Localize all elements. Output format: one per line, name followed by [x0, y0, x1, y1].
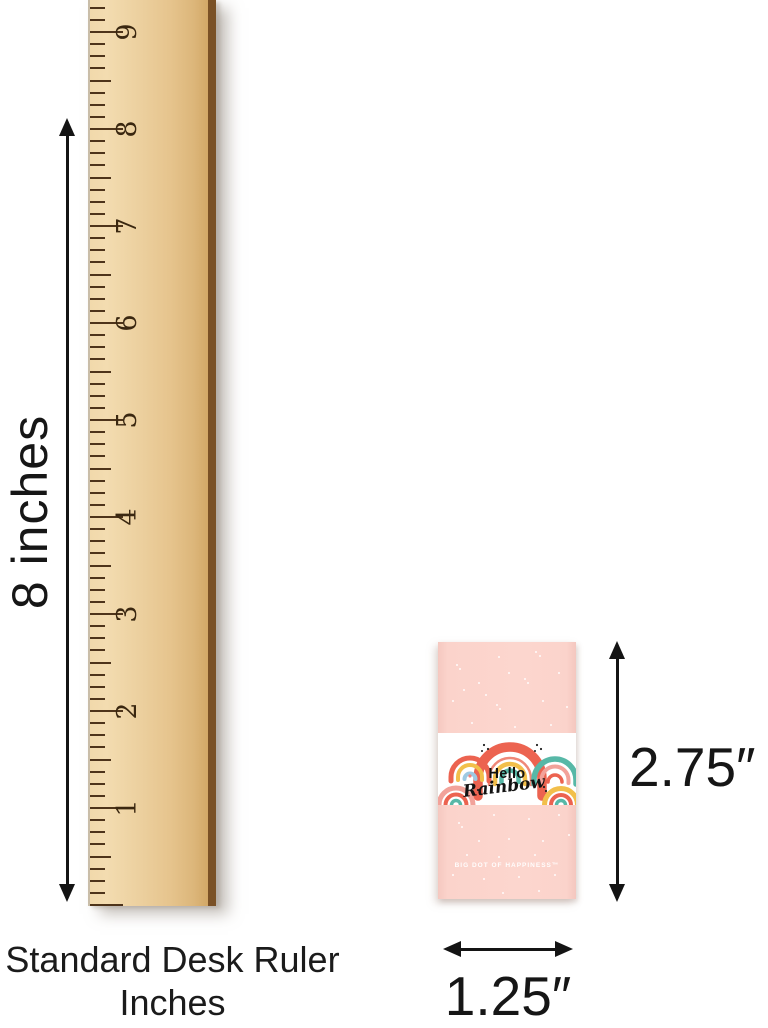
ruler-tick — [90, 577, 105, 579]
ruler-tick — [90, 201, 105, 203]
ruler-tick — [90, 298, 105, 300]
ruler-tick — [90, 371, 111, 373]
speckle-dot — [478, 840, 480, 842]
ruler-tick — [90, 346, 105, 348]
ruler-tick — [90, 67, 105, 69]
speckle-dot — [456, 664, 458, 666]
speckle-dot — [514, 726, 516, 728]
ruler-tick — [90, 395, 105, 397]
ruler-tick — [90, 274, 111, 276]
ruler-tick — [90, 552, 105, 554]
ruler-tick — [90, 189, 105, 191]
ruler-tick — [90, 152, 105, 154]
ruler-tick — [90, 480, 105, 482]
ruler-number: 3 — [112, 598, 144, 630]
ruler-tick — [90, 492, 105, 494]
speckle-dot — [542, 700, 544, 702]
desk-ruler: 987654321 — [88, 0, 216, 906]
speckle-dot — [452, 874, 454, 876]
ruler-tick — [90, 92, 105, 94]
ruler-tick — [90, 249, 105, 251]
ruler-tick — [90, 722, 105, 724]
speckle-dot — [496, 704, 498, 706]
ruler-tick — [90, 261, 105, 263]
speckle-dot — [493, 814, 495, 816]
ruler-tick — [90, 880, 105, 882]
product-height-arrow — [607, 641, 627, 902]
speckle-dot — [459, 668, 461, 670]
ruler-tick — [90, 674, 105, 676]
ruler-tick — [90, 213, 105, 215]
ruler-tick — [90, 819, 105, 821]
arrow-right-icon — [555, 941, 573, 957]
speckle-dot — [538, 890, 540, 892]
speckle-dot — [508, 838, 510, 840]
speckle-dot — [466, 854, 468, 856]
ruler-number: 7 — [112, 210, 144, 242]
ruler-tick — [90, 856, 111, 858]
speckle-dot — [568, 834, 570, 836]
ruler-tick — [90, 904, 123, 906]
ruler-tick — [90, 431, 105, 433]
speckle-dot — [558, 672, 560, 674]
ruler-tick — [90, 625, 105, 627]
ruler-caption-line2: Inches — [0, 981, 345, 1024]
speckle-dot — [485, 694, 487, 696]
ruler-tick — [90, 116, 105, 118]
ruler-caption: Standard Desk Ruler Inches — [0, 938, 345, 1024]
brand-text: BIG DOT OF HAPPINESS™ — [438, 862, 576, 869]
wrapper-label-band: Hello Rainbow — [438, 733, 576, 805]
speckle-dot — [554, 874, 556, 876]
arrow-down-icon — [59, 884, 75, 902]
ruler-tick — [90, 528, 105, 530]
product-height-label: 2.75″ — [629, 735, 756, 799]
candy-bar-wrapper: Hello Rainbow BIG DOT OF HAPPINESS™ — [438, 642, 576, 899]
ruler-tick — [90, 383, 105, 385]
ruler-tick — [90, 55, 105, 57]
ruler-height-arrow — [57, 118, 77, 902]
speckle-dot — [534, 854, 536, 856]
product-width-arrow — [443, 939, 573, 959]
speckle-dot — [498, 856, 500, 858]
ruler-tick — [90, 843, 105, 845]
speckle-dot — [483, 878, 485, 880]
speckle-dot — [471, 722, 473, 724]
ruler-tick — [90, 759, 111, 761]
ruler-tick — [90, 783, 105, 785]
speckle-dot — [518, 876, 520, 878]
arrow-down-icon — [609, 884, 625, 902]
ruler-number: 8 — [112, 113, 144, 145]
speckle-dot — [502, 892, 504, 894]
ruler-tick — [90, 237, 105, 239]
speckle-dot — [524, 678, 526, 680]
ruler-tick — [90, 565, 111, 567]
ruler-tick — [90, 686, 105, 688]
ruler-tick — [90, 831, 105, 833]
ruler-tick — [90, 698, 105, 700]
ruler-height-label: 8 inches — [0, 362, 60, 662]
speckle-dot — [528, 818, 530, 820]
ruler-tick — [90, 407, 105, 409]
ruler-tick — [90, 540, 105, 542]
speckle-dot — [550, 724, 552, 726]
speckle-dot — [535, 651, 537, 653]
ruler-tick — [90, 601, 105, 603]
ruler-tick — [90, 140, 105, 142]
product-size-comparison-image: 987654321 8 inches Standard Desk Ruler I… — [0, 0, 768, 1024]
ruler-tick — [90, 443, 105, 445]
speckle-dot — [461, 826, 463, 828]
ruler-caption-line1: Standard Desk Ruler — [0, 938, 345, 981]
ruler-tick — [90, 771, 105, 773]
ruler-tick — [90, 649, 105, 651]
ruler-tick — [90, 334, 105, 336]
speckle-dot — [452, 700, 454, 702]
ruler-number: 4 — [112, 501, 144, 533]
speckle-dot — [566, 706, 568, 708]
ruler-number: 9 — [112, 16, 144, 48]
ruler-tick — [90, 455, 105, 457]
ruler-tick — [90, 164, 105, 166]
ruler-tick — [90, 468, 111, 470]
speckle-dot — [542, 840, 544, 842]
ruler-tick — [90, 637, 105, 639]
ruler-tick — [90, 504, 105, 506]
ruler-tick — [90, 19, 105, 21]
ruler-tick — [90, 589, 105, 591]
speckle-dot — [463, 689, 465, 691]
ruler-number: 1 — [112, 792, 144, 824]
ruler-tick — [90, 7, 105, 9]
ruler-tick — [90, 104, 105, 106]
speckle-dot — [558, 814, 560, 816]
ruler-number: 5 — [112, 404, 144, 436]
ruler-tick — [90, 795, 105, 797]
product-width-label: 1.25″ — [408, 964, 608, 1028]
ruler-tick — [90, 286, 105, 288]
ruler-tick — [90, 892, 105, 894]
speckle-dot — [527, 682, 529, 684]
speckle-dot — [498, 656, 500, 658]
speckle-dot — [539, 655, 541, 657]
ruler-number: 6 — [112, 307, 144, 339]
ruler-tick — [90, 662, 111, 664]
ruler-tick — [90, 80, 111, 82]
ruler-number: 2 — [112, 695, 144, 727]
ruler-tick — [90, 43, 105, 45]
ruler-tick — [90, 177, 111, 179]
ruler-tick — [90, 734, 105, 736]
speckle-dot — [499, 708, 501, 710]
ruler-tick — [90, 358, 105, 360]
ruler-tick — [90, 868, 105, 870]
ruler-tick — [90, 310, 105, 312]
speckle-dot — [478, 682, 480, 684]
speckle-dot — [458, 822, 460, 824]
speckle-dot — [508, 672, 510, 674]
ruler-tick — [90, 746, 105, 748]
